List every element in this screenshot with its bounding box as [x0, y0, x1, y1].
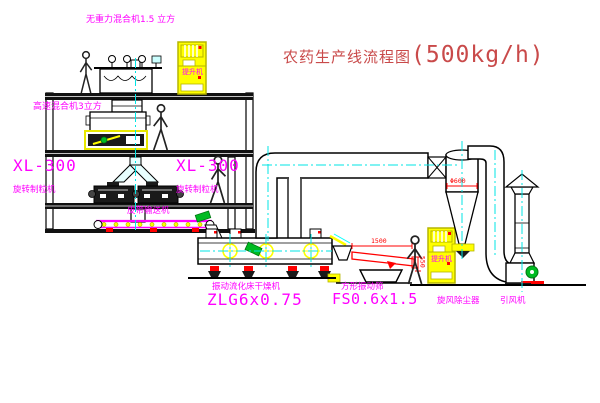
- label-elevator-1: 提升机: [182, 69, 203, 76]
- diagram-title-text: 农药生产线流程图: [283, 48, 411, 66]
- label-dryer-model: ZLG6x0.75: [207, 292, 303, 308]
- label-granulator-left-model: XL-300: [13, 158, 77, 174]
- flow-diagram-canvas: 农药生产线流程图(500kg/h) 无重力混合机1.5 立方 高速混合机3立方 …: [0, 0, 600, 403]
- granulator-left: [89, 182, 135, 203]
- label-fan: 引风机: [500, 297, 526, 306]
- label-cyclone: 旋风除尘器: [437, 297, 480, 306]
- stack-and-fan: [505, 174, 544, 286]
- exhaust-duct-main: [256, 153, 428, 238]
- dim-sieve-height: 550: [419, 256, 426, 268]
- label-belt-conveyor: 皮带输送机: [127, 207, 170, 216]
- person-figure: [154, 105, 168, 150]
- dim-sieve-length: 1500: [371, 238, 387, 245]
- diagram-title-capacity: (500kg/h): [411, 42, 545, 68]
- label-granulator-mid-model: XL-300: [176, 158, 240, 174]
- label-sieve-model: FS0.6x1.5: [332, 292, 418, 307]
- label-high-speed-mixer: 高速混合机3立方: [33, 103, 102, 112]
- person-figure: [80, 52, 91, 93]
- dim-cyclone-diameter: Φ600: [450, 178, 466, 185]
- diagram-title: 农药生产线流程图(500kg/h): [283, 42, 545, 68]
- gravity-mixer: [94, 56, 162, 94]
- label-gravity-mixer: 无重力混合机1.5 立方: [86, 16, 175, 25]
- label-granulator-left-name: 旋转制粒机: [13, 186, 56, 195]
- label-elevator-2: 提升机: [431, 256, 452, 263]
- label-granulator-mid-name: 旋转制粒机: [176, 186, 219, 195]
